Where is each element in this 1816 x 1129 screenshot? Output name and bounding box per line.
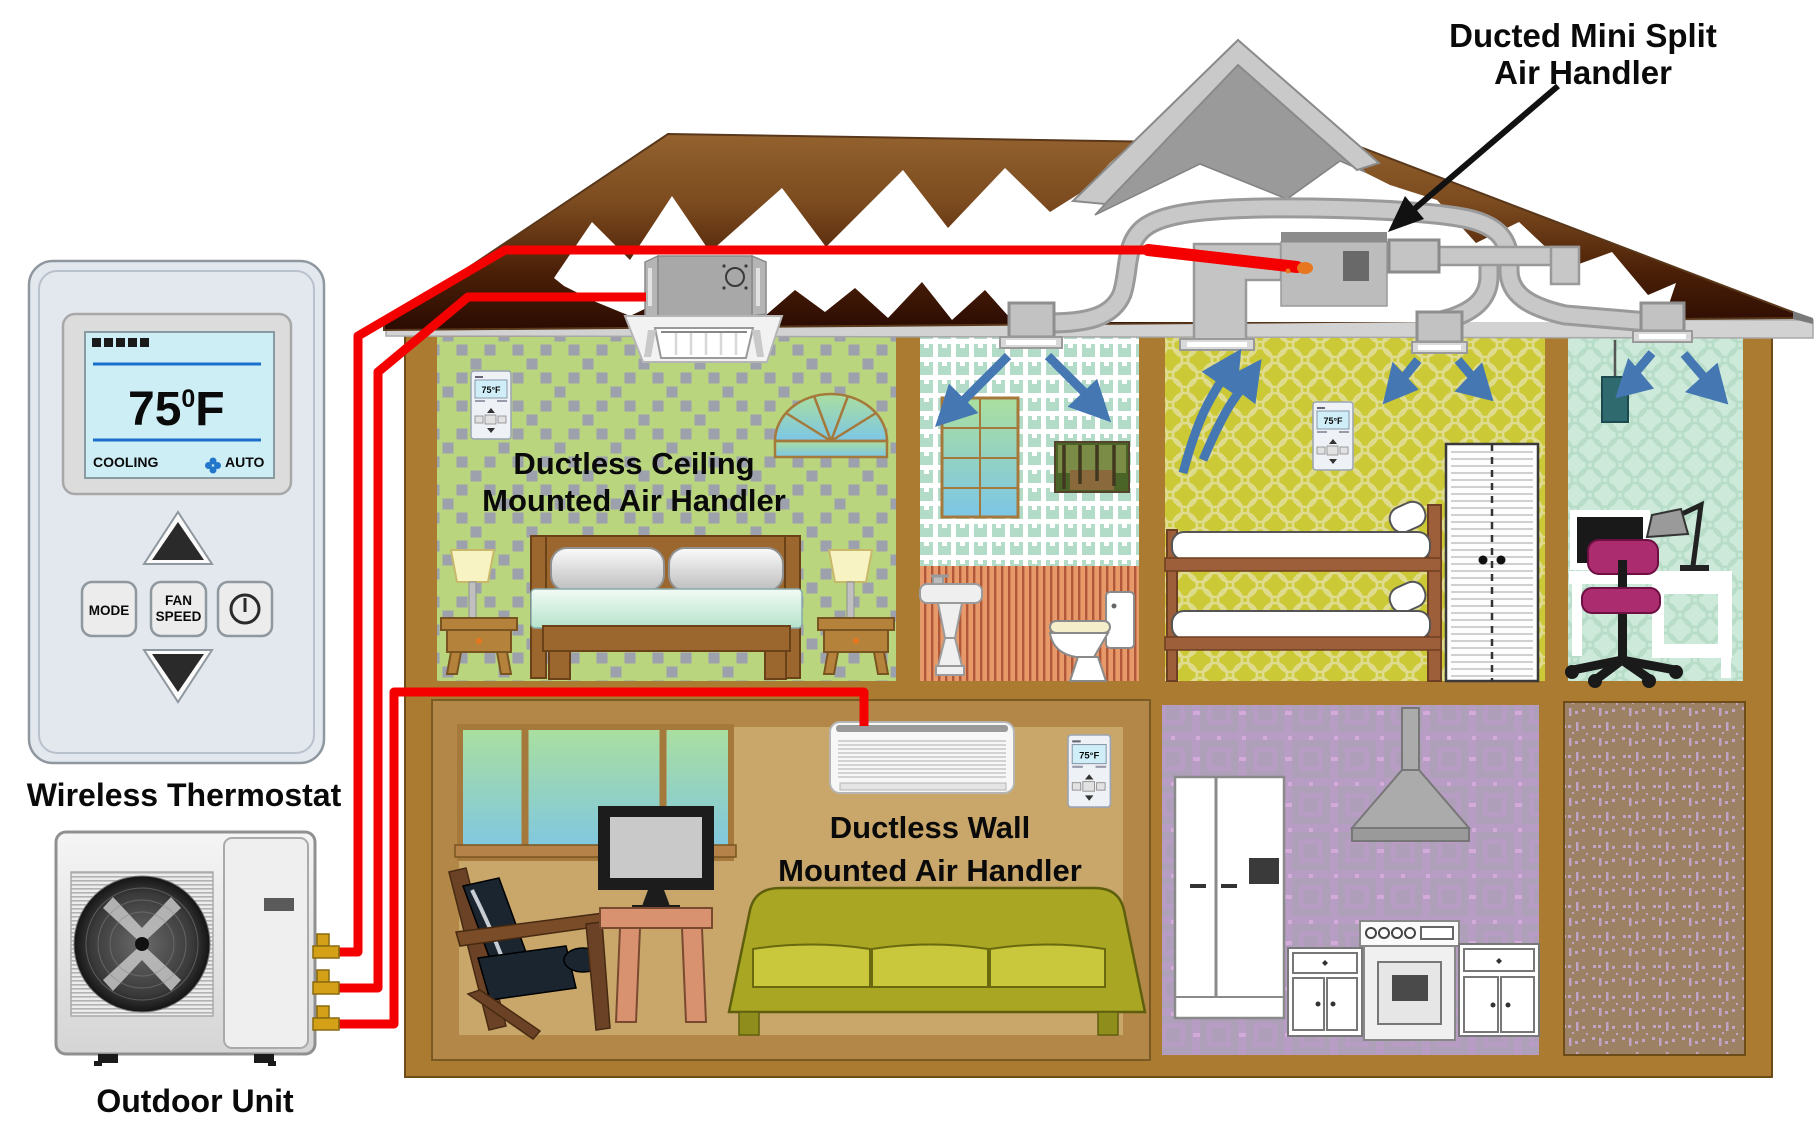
svg-text:Ducted Mini Split: Ducted Mini Split bbox=[1449, 17, 1717, 54]
svg-text:FAN: FAN bbox=[165, 593, 192, 608]
svg-text:SPEED: SPEED bbox=[156, 609, 202, 624]
svg-text:MODE: MODE bbox=[89, 603, 130, 618]
svg-text:AUTO: AUTO bbox=[225, 454, 265, 470]
svg-text:Ductless Wall: Ductless Wall bbox=[830, 810, 1030, 845]
svg-text:Mounted Air Handler: Mounted Air Handler bbox=[778, 853, 1082, 888]
svg-text:Mounted Air Handler: Mounted Air Handler bbox=[482, 483, 786, 518]
svg-text:Air Handler: Air Handler bbox=[1494, 54, 1672, 91]
svg-text:COOLING: COOLING bbox=[93, 454, 158, 470]
svg-text:Wireless Thermostat: Wireless Thermostat bbox=[27, 777, 342, 813]
svg-text:Outdoor Unit: Outdoor Unit bbox=[96, 1083, 294, 1119]
svg-text:750F: 750F bbox=[128, 383, 225, 436]
svg-text:Ductless Ceiling: Ductless Ceiling bbox=[513, 446, 754, 481]
